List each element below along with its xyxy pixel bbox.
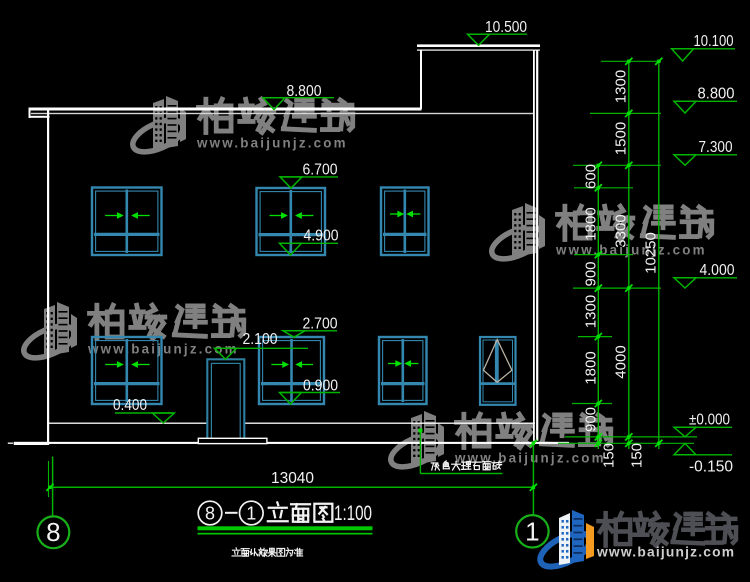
svg-text:8.800: 8.800 <box>698 86 735 103</box>
svg-text:13040: 13040 <box>271 470 314 487</box>
svg-text:1:100: 1:100 <box>334 502 372 525</box>
svg-text:1300: 1300 <box>583 295 600 328</box>
svg-text:2.100: 2.100 <box>243 331 278 348</box>
svg-text:4000: 4000 <box>613 345 630 378</box>
svg-text:1300: 1300 <box>613 70 630 103</box>
svg-text:4.000: 4.000 <box>700 262 735 279</box>
svg-text:www.baijunjz.com: www.baijunjz.com <box>196 136 348 151</box>
svg-text:1800: 1800 <box>583 351 600 384</box>
svg-text:600: 600 <box>583 164 600 189</box>
svg-text:10.500: 10.500 <box>485 19 527 36</box>
svg-text:www.baijunjz.com: www.baijunjz.com <box>555 243 707 258</box>
svg-text:10.100: 10.100 <box>694 33 734 50</box>
svg-text:900: 900 <box>583 261 600 286</box>
svg-text:1: 1 <box>525 517 539 547</box>
svg-text:-0.150: -0.150 <box>689 459 733 476</box>
svg-text:2.700: 2.700 <box>303 316 338 333</box>
svg-text:150: 150 <box>601 443 618 468</box>
svg-text:±0.000: ±0.000 <box>689 412 730 429</box>
svg-text:3300: 3300 <box>613 214 630 247</box>
svg-text:www.baijunjz.com: www.baijunjz.com <box>454 451 606 466</box>
svg-text:1500: 1500 <box>613 122 630 155</box>
svg-text:900: 900 <box>583 407 600 432</box>
svg-text:0.900: 0.900 <box>303 377 338 394</box>
svg-text:8: 8 <box>46 517 60 547</box>
svg-text:10250: 10250 <box>643 232 660 274</box>
svg-text:7.300: 7.300 <box>699 139 733 156</box>
svg-text:4.900: 4.900 <box>304 228 339 245</box>
svg-text:1: 1 <box>246 504 256 524</box>
svg-text:1800: 1800 <box>583 207 600 240</box>
svg-text:www.baijunjz.com: www.baijunjz.com <box>596 545 735 560</box>
svg-text:6.700: 6.700 <box>303 162 338 179</box>
svg-text:0.400: 0.400 <box>113 397 147 414</box>
svg-text:8: 8 <box>205 504 215 524</box>
svg-text:150: 150 <box>629 443 646 468</box>
